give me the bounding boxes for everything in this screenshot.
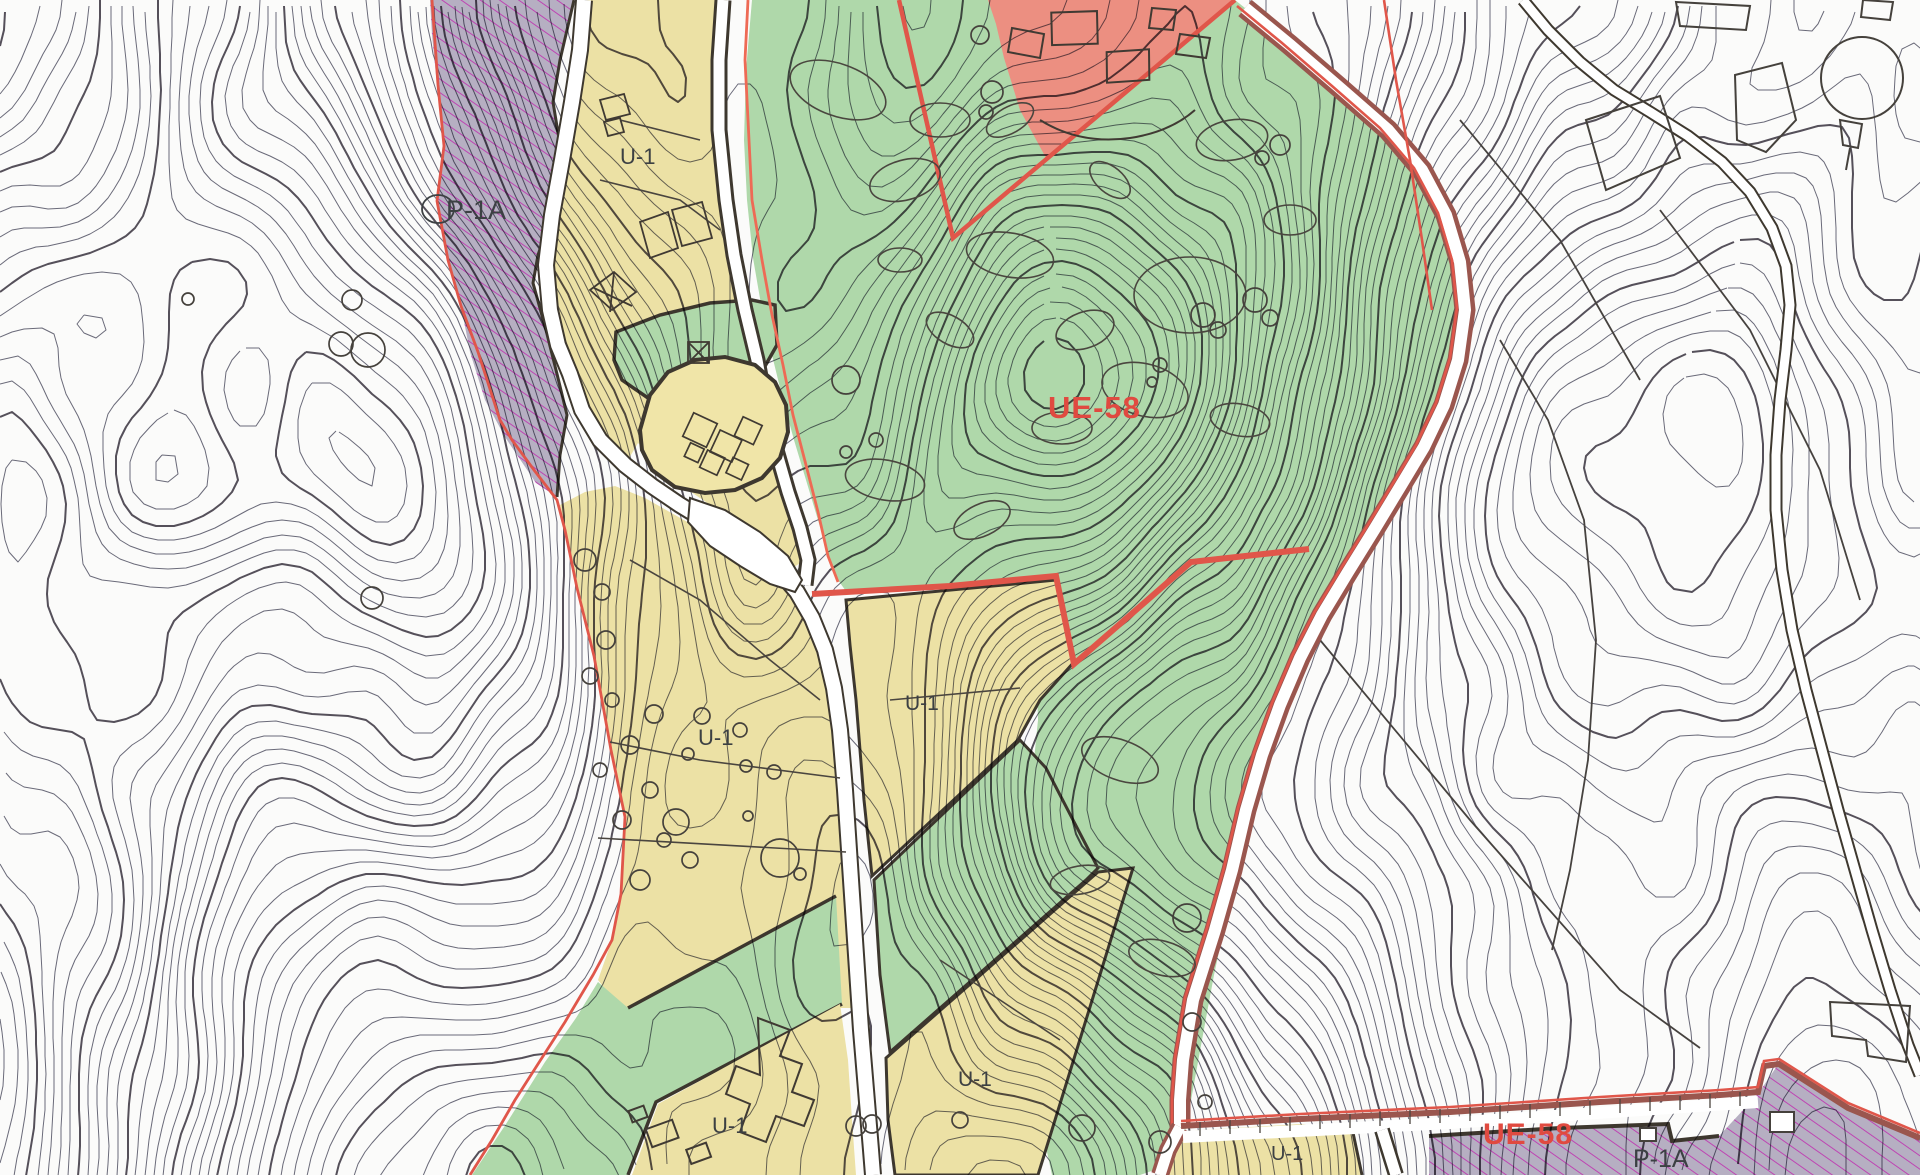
svg-text:U-1: U-1 <box>712 1113 747 1138</box>
svg-text:U-1: U-1 <box>958 1068 992 1091</box>
svg-text:UE-58: UE-58 <box>1048 390 1141 425</box>
svg-text:U-1: U-1 <box>698 725 733 750</box>
svg-text:U-1: U-1 <box>905 692 939 715</box>
svg-text:U-1: U-1 <box>1271 1143 1303 1165</box>
svg-text:P-1A: P-1A <box>1633 1145 1689 1173</box>
svg-text:P-1A: P-1A <box>446 195 506 225</box>
svg-text:UE-58: UE-58 <box>1483 1118 1573 1151</box>
svg-text:U-1: U-1 <box>620 144 655 169</box>
